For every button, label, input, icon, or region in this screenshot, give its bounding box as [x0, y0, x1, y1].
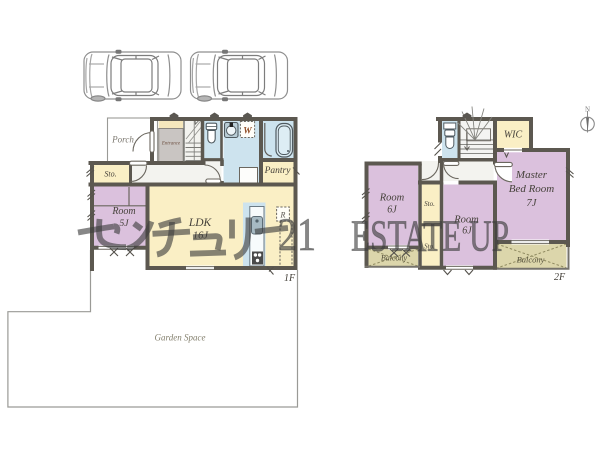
svg-text:Sto.: Sto.: [104, 170, 116, 179]
svg-text:Master: Master: [515, 169, 548, 181]
svg-text:Pantry: Pantry: [264, 166, 292, 176]
svg-text:Room: Room: [379, 193, 405, 204]
svg-text:2F: 2F: [554, 272, 566, 283]
svg-text:1F: 1F: [284, 273, 296, 284]
svg-text:Room: Room: [111, 206, 135, 217]
svg-text:Sto.: Sto.: [424, 200, 435, 208]
svg-text:Entrance: Entrance: [161, 142, 181, 147]
svg-text:W: W: [243, 127, 252, 137]
svg-text:Garden Space: Garden Space: [155, 333, 206, 343]
svg-text:Balcony: Balcony: [517, 255, 545, 265]
svg-text:Bed Room: Bed Room: [509, 183, 555, 195]
svg-text:Porch: Porch: [111, 135, 134, 145]
svg-text:LDK: LDK: [188, 217, 213, 229]
svg-text:WIC: WIC: [504, 130, 523, 141]
svg-text:7J: 7J: [527, 198, 538, 209]
svg-text:5J: 5J: [120, 219, 130, 229]
svg-text:N: N: [585, 106, 590, 114]
svg-text:21: 21: [278, 209, 316, 261]
svg-text:ESTATE UP: ESTATE UP: [351, 212, 509, 261]
